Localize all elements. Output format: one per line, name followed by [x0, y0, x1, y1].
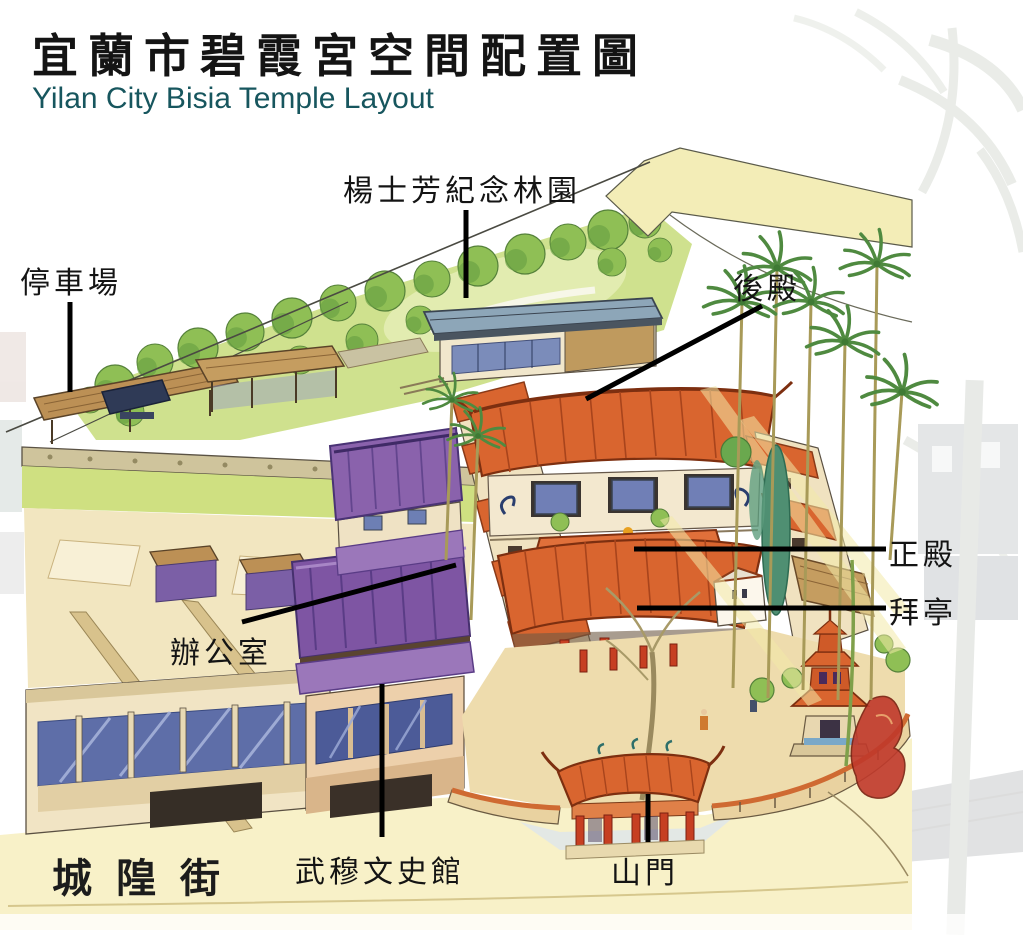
label-worship-pavilion: 拜亭	[889, 588, 957, 632]
label-wumu-museum: 武穆文史館	[295, 847, 465, 891]
label-rear-hall: 後殿	[733, 264, 801, 308]
label-mountain-gate: 山門	[611, 848, 679, 892]
site-illustration	[0, 0, 1023, 935]
label-chenghuang-street: 城隍街	[52, 846, 244, 904]
label-office: 辦公室	[170, 628, 272, 672]
museum-building	[292, 542, 474, 818]
label-main-hall: 正殿	[889, 530, 957, 574]
office-building	[330, 428, 464, 575]
page-title: 宜蘭市碧霞宮空間配置圖	[32, 20, 648, 86]
page-subtitle: Yilan City Bisia Temple Layout	[32, 82, 434, 116]
label-memorial-garden: 楊士芳紀念林園	[343, 166, 581, 210]
label-parking-lot: 停車場	[20, 258, 122, 302]
office-facade	[26, 668, 330, 834]
temple-layout-page: 宜蘭市碧霞宮空間配置圖 Yilan City Bisia Temple Layo…	[0, 0, 1023, 935]
